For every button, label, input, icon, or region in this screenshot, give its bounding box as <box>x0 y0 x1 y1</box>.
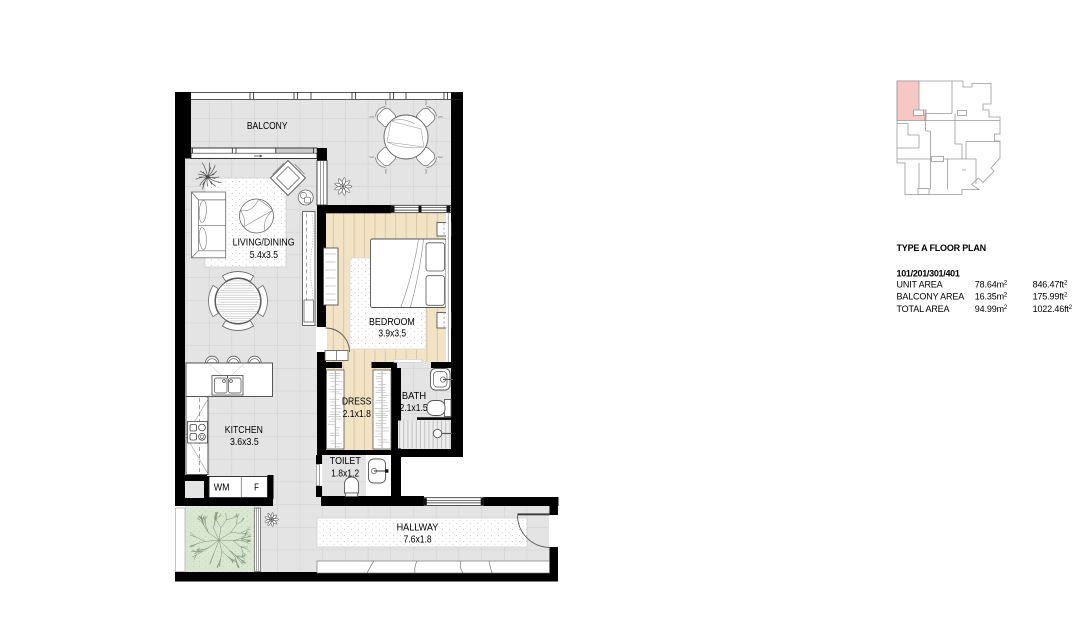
svg-text:BALCONY AREA: BALCONY AREA <box>897 292 965 302</box>
svg-text:TYPE A FLOOR PLAN: TYPE A FLOOR PLAN <box>897 243 986 253</box>
svg-text:TOTAL AREA: TOTAL AREA <box>897 304 950 314</box>
svg-text:78.64m2: 78.64m2 <box>975 280 1008 290</box>
svg-text:846.47ft2: 846.47ft2 <box>1033 280 1068 290</box>
svg-text:UNIT AREA: UNIT AREA <box>897 280 943 290</box>
svg-text:16.35m2: 16.35m2 <box>975 292 1008 302</box>
svg-text:94.99m2: 94.99m2 <box>975 304 1008 314</box>
svg-text:175.99ft2: 175.99ft2 <box>1033 292 1068 302</box>
svg-text:1022.46ft2: 1022.46ft2 <box>1033 304 1073 314</box>
svg-text:101/201/301/401: 101/201/301/401 <box>897 269 960 279</box>
